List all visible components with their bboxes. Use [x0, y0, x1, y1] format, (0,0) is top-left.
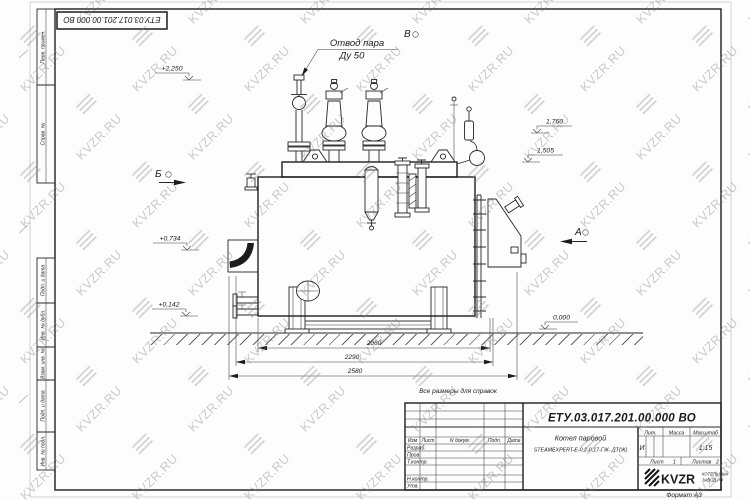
svg-text:0,000: 0,000 — [553, 315, 570, 322]
elevation-0142: +0,142 — [152, 302, 198, 317]
top-doc-number: ЕТУ.03.017.201.00.000 ВО — [63, 15, 160, 24]
lit-value: И — [639, 445, 645, 452]
safety-valve-1 — [322, 80, 348, 163]
dim-2060: 2060 — [366, 340, 382, 347]
steam-outlet-valve — [288, 75, 310, 162]
manhole — [297, 281, 320, 301]
elevation-1760: 1,760 — [531, 119, 572, 134]
drawing-sheet: ЕТУ.03.017.201.00.000 ВО Перв. примен. С… — [0, 0, 750, 500]
drain-valves — [233, 292, 258, 318]
row-tkontr: Т.контр. — [407, 460, 428, 466]
col-data: Дата — [506, 438, 520, 444]
col-podp: Подп. — [488, 438, 501, 444]
col-ndoc: N докум. — [450, 438, 470, 444]
row-utv: Утв. — [407, 484, 419, 490]
product-model: STEAMEXPERT-E-0,2-0,17-ГЖ- ДТ(Ж) — [534, 448, 628, 454]
view-label-a: А — [574, 227, 582, 238]
steam-outlet-text-1: Отвод пара — [330, 38, 384, 49]
massa-label: Масса — [669, 430, 685, 436]
view-b-arrow — [174, 180, 186, 185]
frame-label-vzam-inv: Взам. инв. № — [41, 347, 47, 379]
elevation-2250: +2,250 — [155, 66, 201, 81]
frame-label-sprav-no: Справ. № — [41, 122, 47, 145]
logo-sub-1: КОТЕЛЬНЫЙ — [702, 472, 728, 477]
dimensions: 2060 2290 2580 Все размеры для справок — [229, 272, 517, 395]
logo-text: KVZR — [661, 473, 695, 487]
steam-outlet-text-2: Ду 50 — [339, 51, 365, 62]
col-list: Лист — [421, 438, 435, 444]
elevation-0734: +0,734 — [153, 236, 199, 251]
list-value: 1 — [673, 459, 676, 465]
row-prov: Пров. — [407, 453, 421, 459]
scale-value: 1:15 — [699, 445, 713, 452]
frame-label-inv-podl: Инв. № подл. — [41, 435, 47, 466]
view-label-b: Б — [155, 169, 162, 180]
row-razrab: Разраб. — [407, 446, 426, 452]
reference-note: Все размеры для справок — [419, 387, 498, 395]
row-nkontr: Н.контр. — [407, 477, 429, 483]
pressure-gauge — [450, 97, 485, 166]
svg-text:+2,250: +2,250 — [162, 66, 183, 73]
water-column — [365, 167, 378, 231]
format-label: Формат А3 — [666, 492, 702, 499]
front-burner-box — [228, 240, 258, 272]
top-left-valve — [245, 174, 257, 190]
boiler-side-view — [150, 75, 643, 333]
svg-text:1,760: 1,760 — [546, 119, 563, 126]
steam-outlet-callout: Отвод пара Ду 50 — [302, 38, 399, 77]
listov-label: Листов — [691, 459, 712, 465]
dim-2290: 2290 — [344, 354, 360, 361]
frame-label-podp-data-2: Подп. и дата — [41, 390, 47, 422]
masshtab-label: Масштаб — [693, 430, 719, 436]
col-izm: Изм — [408, 438, 418, 444]
smoke-box — [488, 196, 526, 267]
level-gauge — [395, 158, 429, 217]
svg-text:1,505: 1,505 — [537, 148, 554, 155]
view-a-arrow — [560, 239, 572, 244]
title-doc-number: ЕТУ.03.017.201.00.000 ВО — [548, 413, 696, 425]
view-label-v: В — [404, 29, 411, 40]
lifting-lug-right — [431, 150, 455, 162]
logo-sub-2: ЗАВОД.РФ — [702, 478, 724, 483]
top-doc-number-box: ЕТУ.03.017.201.00.000 ВО — [57, 12, 167, 29]
dim-2580: 2580 — [347, 368, 363, 375]
title-block: ЕТУ.03.017.201.00.000 ВО Изм Лист N доку… — [405, 403, 728, 499]
lit-label: Лит. — [643, 430, 656, 436]
frame-label-podp-data-1: Подп. и дата — [41, 265, 47, 297]
frame-label-perv-primen: Перв. примен. — [41, 30, 47, 63]
lifting-lug-left — [303, 150, 327, 162]
product-name: Котел паровой — [555, 434, 607, 443]
list-label: Лист — [649, 459, 664, 465]
listov-value: 2 — [715, 459, 719, 465]
kvzr-logo: KVZR КОТЕЛЬНЫЙ ЗАВОД.РФ — [645, 469, 728, 487]
left-frame-boxes: Перв. примен. Справ. № Подп. и дата Инв.… — [37, 9, 55, 470]
elevation-1505: 1,505 — [522, 148, 563, 163]
support-right — [427, 287, 451, 333]
svg-text:+0,142: +0,142 — [159, 302, 180, 309]
svg-text:+0,734: +0,734 — [160, 236, 181, 243]
drawing-canvas: ЕТУ.03.017.201.00.000 ВО Перв. примен. С… — [0, 0, 750, 500]
frame-label-inv-dubl: Инв. № дубл. — [41, 310, 47, 341]
safety-valve-2 — [362, 80, 388, 163]
elevation-0000: 0,000 — [539, 315, 578, 330]
